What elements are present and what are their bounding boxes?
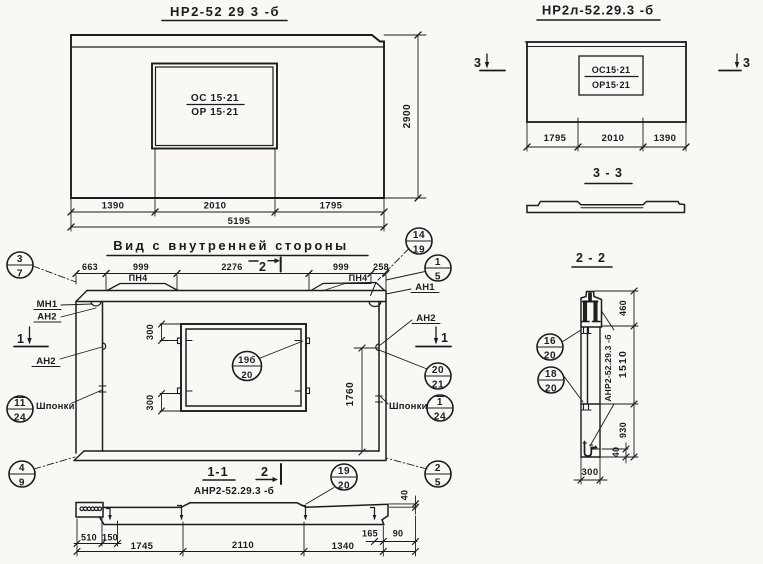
svg-text:Шпонки: Шпонки [36,401,75,412]
svg-text:ОС15·21: ОС15·21 [592,65,631,75]
svg-text:АНР2-52.29.3 -б: АНР2-52.29.3 -б [603,334,613,401]
svg-text:999: 999 [333,262,349,272]
svg-text:2: 2 [259,260,267,274]
svg-text:19: 19 [338,466,350,477]
svg-text:НР2-52 29 3 -б: НР2-52 29 3 -б [170,4,280,19]
svg-text:МН1: МН1 [37,299,58,310]
svg-text:2: 2 [435,463,441,474]
svg-text:ПН4: ПН4 [349,273,368,283]
svg-text:1760: 1760 [345,382,356,407]
svg-text:2900: 2900 [402,104,413,129]
svg-text:20: 20 [545,384,557,395]
svg-text:16: 16 [544,336,556,347]
svg-text:18: 18 [545,369,557,380]
svg-text:3: 3 [474,56,482,70]
svg-text:20: 20 [241,370,252,381]
svg-text:40: 40 [400,490,410,501]
svg-text:40: 40 [611,447,621,458]
svg-text:ПН4: ПН4 [129,273,148,283]
svg-text:АН2: АН2 [416,313,436,324]
svg-text:Шпонки: Шпонки [389,401,428,412]
svg-text:19б: 19б [238,355,256,366]
svg-text:1795: 1795 [544,133,567,144]
svg-text:2 - 2: 2 - 2 [576,251,606,265]
svg-text:4: 4 [19,463,25,474]
svg-text:7: 7 [17,269,23,280]
svg-text:165: 165 [362,529,378,539]
svg-text:2010: 2010 [602,133,625,144]
svg-text:НР2л-52.29.3 -б: НР2л-52.29.3 -б [542,3,654,18]
svg-text:1: 1 [441,331,449,345]
svg-text:3: 3 [17,254,23,265]
svg-text:Вид с внутренней стороны: Вид с внутренней стороны [113,238,349,253]
svg-text:90: 90 [393,529,404,539]
svg-text:АН1: АН1 [415,282,435,293]
svg-text:ОС 15·21: ОС 15·21 [191,93,239,104]
svg-text:2110: 2110 [232,540,254,551]
svg-text:2276: 2276 [221,262,242,272]
svg-text:9: 9 [19,478,25,489]
svg-text:150: 150 [102,533,118,543]
svg-text:24: 24 [434,412,446,423]
svg-text:3 - 3: 3 - 3 [593,166,623,180]
svg-text:1795: 1795 [320,201,343,212]
svg-text:20: 20 [544,351,556,362]
svg-text:2010: 2010 [204,201,227,212]
svg-text:ОР15·21: ОР15·21 [592,80,630,90]
svg-text:АНР2-52.29.3 -б: АНР2-52.29.3 -б [194,485,274,497]
svg-text:3: 3 [743,56,751,70]
svg-text:300: 300 [581,467,598,478]
svg-text:1745: 1745 [131,541,154,552]
svg-text:999: 999 [133,262,149,272]
svg-text:1340: 1340 [332,541,355,552]
svg-text:14: 14 [413,230,425,241]
svg-text:1510: 1510 [617,350,629,378]
svg-text:21: 21 [432,380,444,391]
svg-text:1: 1 [437,397,443,408]
svg-text:24: 24 [14,413,26,424]
svg-text:2: 2 [261,465,269,479]
svg-text:1-1: 1-1 [207,465,228,479]
svg-text:258: 258 [373,262,389,272]
svg-text:510: 510 [81,533,97,543]
svg-text:АН2: АН2 [36,356,56,367]
svg-text:5: 5 [435,478,441,489]
svg-text:300: 300 [145,395,155,411]
svg-text:20: 20 [338,481,350,492]
svg-text:460: 460 [618,300,628,316]
svg-text:1: 1 [17,332,25,346]
svg-text:5195: 5195 [228,216,251,227]
svg-text:663: 663 [82,262,98,272]
svg-text:1390: 1390 [102,201,125,212]
svg-text:АН2: АН2 [37,312,57,323]
svg-text:ОР 15·21: ОР 15·21 [191,107,239,118]
svg-text:1: 1 [435,257,441,268]
svg-text:11: 11 [14,398,26,409]
svg-text:20: 20 [432,365,444,376]
svg-text:1390: 1390 [654,133,677,144]
svg-text:5: 5 [435,272,441,283]
svg-text:930: 930 [618,422,628,438]
svg-text:300: 300 [145,324,155,340]
svg-text:19: 19 [413,245,425,256]
